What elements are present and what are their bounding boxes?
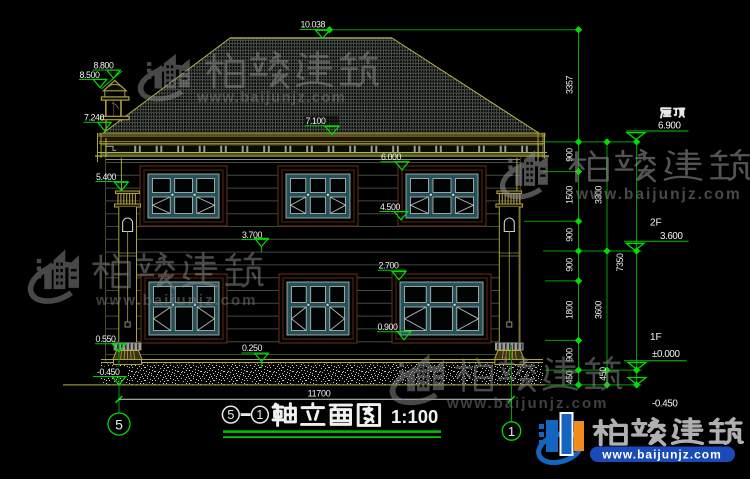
svg-text:0.250: 0.250	[242, 343, 263, 353]
svg-text:www.baijunjz.com: www.baijunjz.com	[196, 90, 346, 106]
svg-text:10.038: 10.038	[301, 20, 326, 30]
svg-text:www.baijunjz.com: www.baijunjz.com	[601, 447, 722, 461]
svg-text:900: 900	[565, 348, 575, 362]
svg-text:www.baijunjz.com: www.baijunjz.com	[575, 186, 742, 203]
svg-text:3.600: 3.600	[660, 231, 683, 242]
svg-text:5.400: 5.400	[96, 172, 117, 182]
svg-text:0.550: 0.550	[96, 334, 117, 344]
svg-text:8.800: 8.800	[94, 61, 115, 71]
svg-text:±0.000: ±0.000	[652, 349, 680, 360]
svg-text:3600: 3600	[594, 301, 604, 319]
svg-text:7.100: 7.100	[306, 116, 327, 126]
svg-text:5: 5	[227, 408, 234, 422]
svg-text:-0.450: -0.450	[652, 399, 678, 410]
svg-text:6.900: 6.900	[658, 121, 681, 132]
svg-text:8.500: 8.500	[80, 70, 101, 80]
svg-text:1500: 1500	[565, 186, 575, 204]
svg-text:7350: 7350	[615, 253, 625, 271]
svg-text:900: 900	[565, 258, 575, 272]
svg-text:1800: 1800	[565, 301, 575, 319]
svg-text:4.500: 4.500	[380, 202, 401, 212]
svg-text:5: 5	[115, 417, 123, 433]
svg-text:www.baijunjz.com: www.baijunjz.com	[95, 292, 257, 309]
svg-text:7.240: 7.240	[84, 113, 105, 123]
svg-text:-0.450: -0.450	[97, 367, 120, 377]
svg-text:900: 900	[565, 228, 575, 242]
svg-text:0.900: 0.900	[378, 322, 399, 332]
svg-text:1: 1	[508, 424, 515, 439]
svg-text:www.baijunjz.com: www.baijunjz.com	[446, 395, 608, 412]
svg-text:1:100: 1:100	[391, 406, 438, 427]
svg-text:1F: 1F	[650, 332, 662, 343]
svg-text:6.000: 6.000	[381, 152, 402, 162]
svg-text:11700: 11700	[308, 389, 331, 399]
svg-text:3357: 3357	[565, 76, 575, 94]
svg-text:2.700: 2.700	[379, 260, 400, 270]
svg-text:2F: 2F	[650, 218, 662, 229]
svg-text:1: 1	[256, 408, 263, 422]
